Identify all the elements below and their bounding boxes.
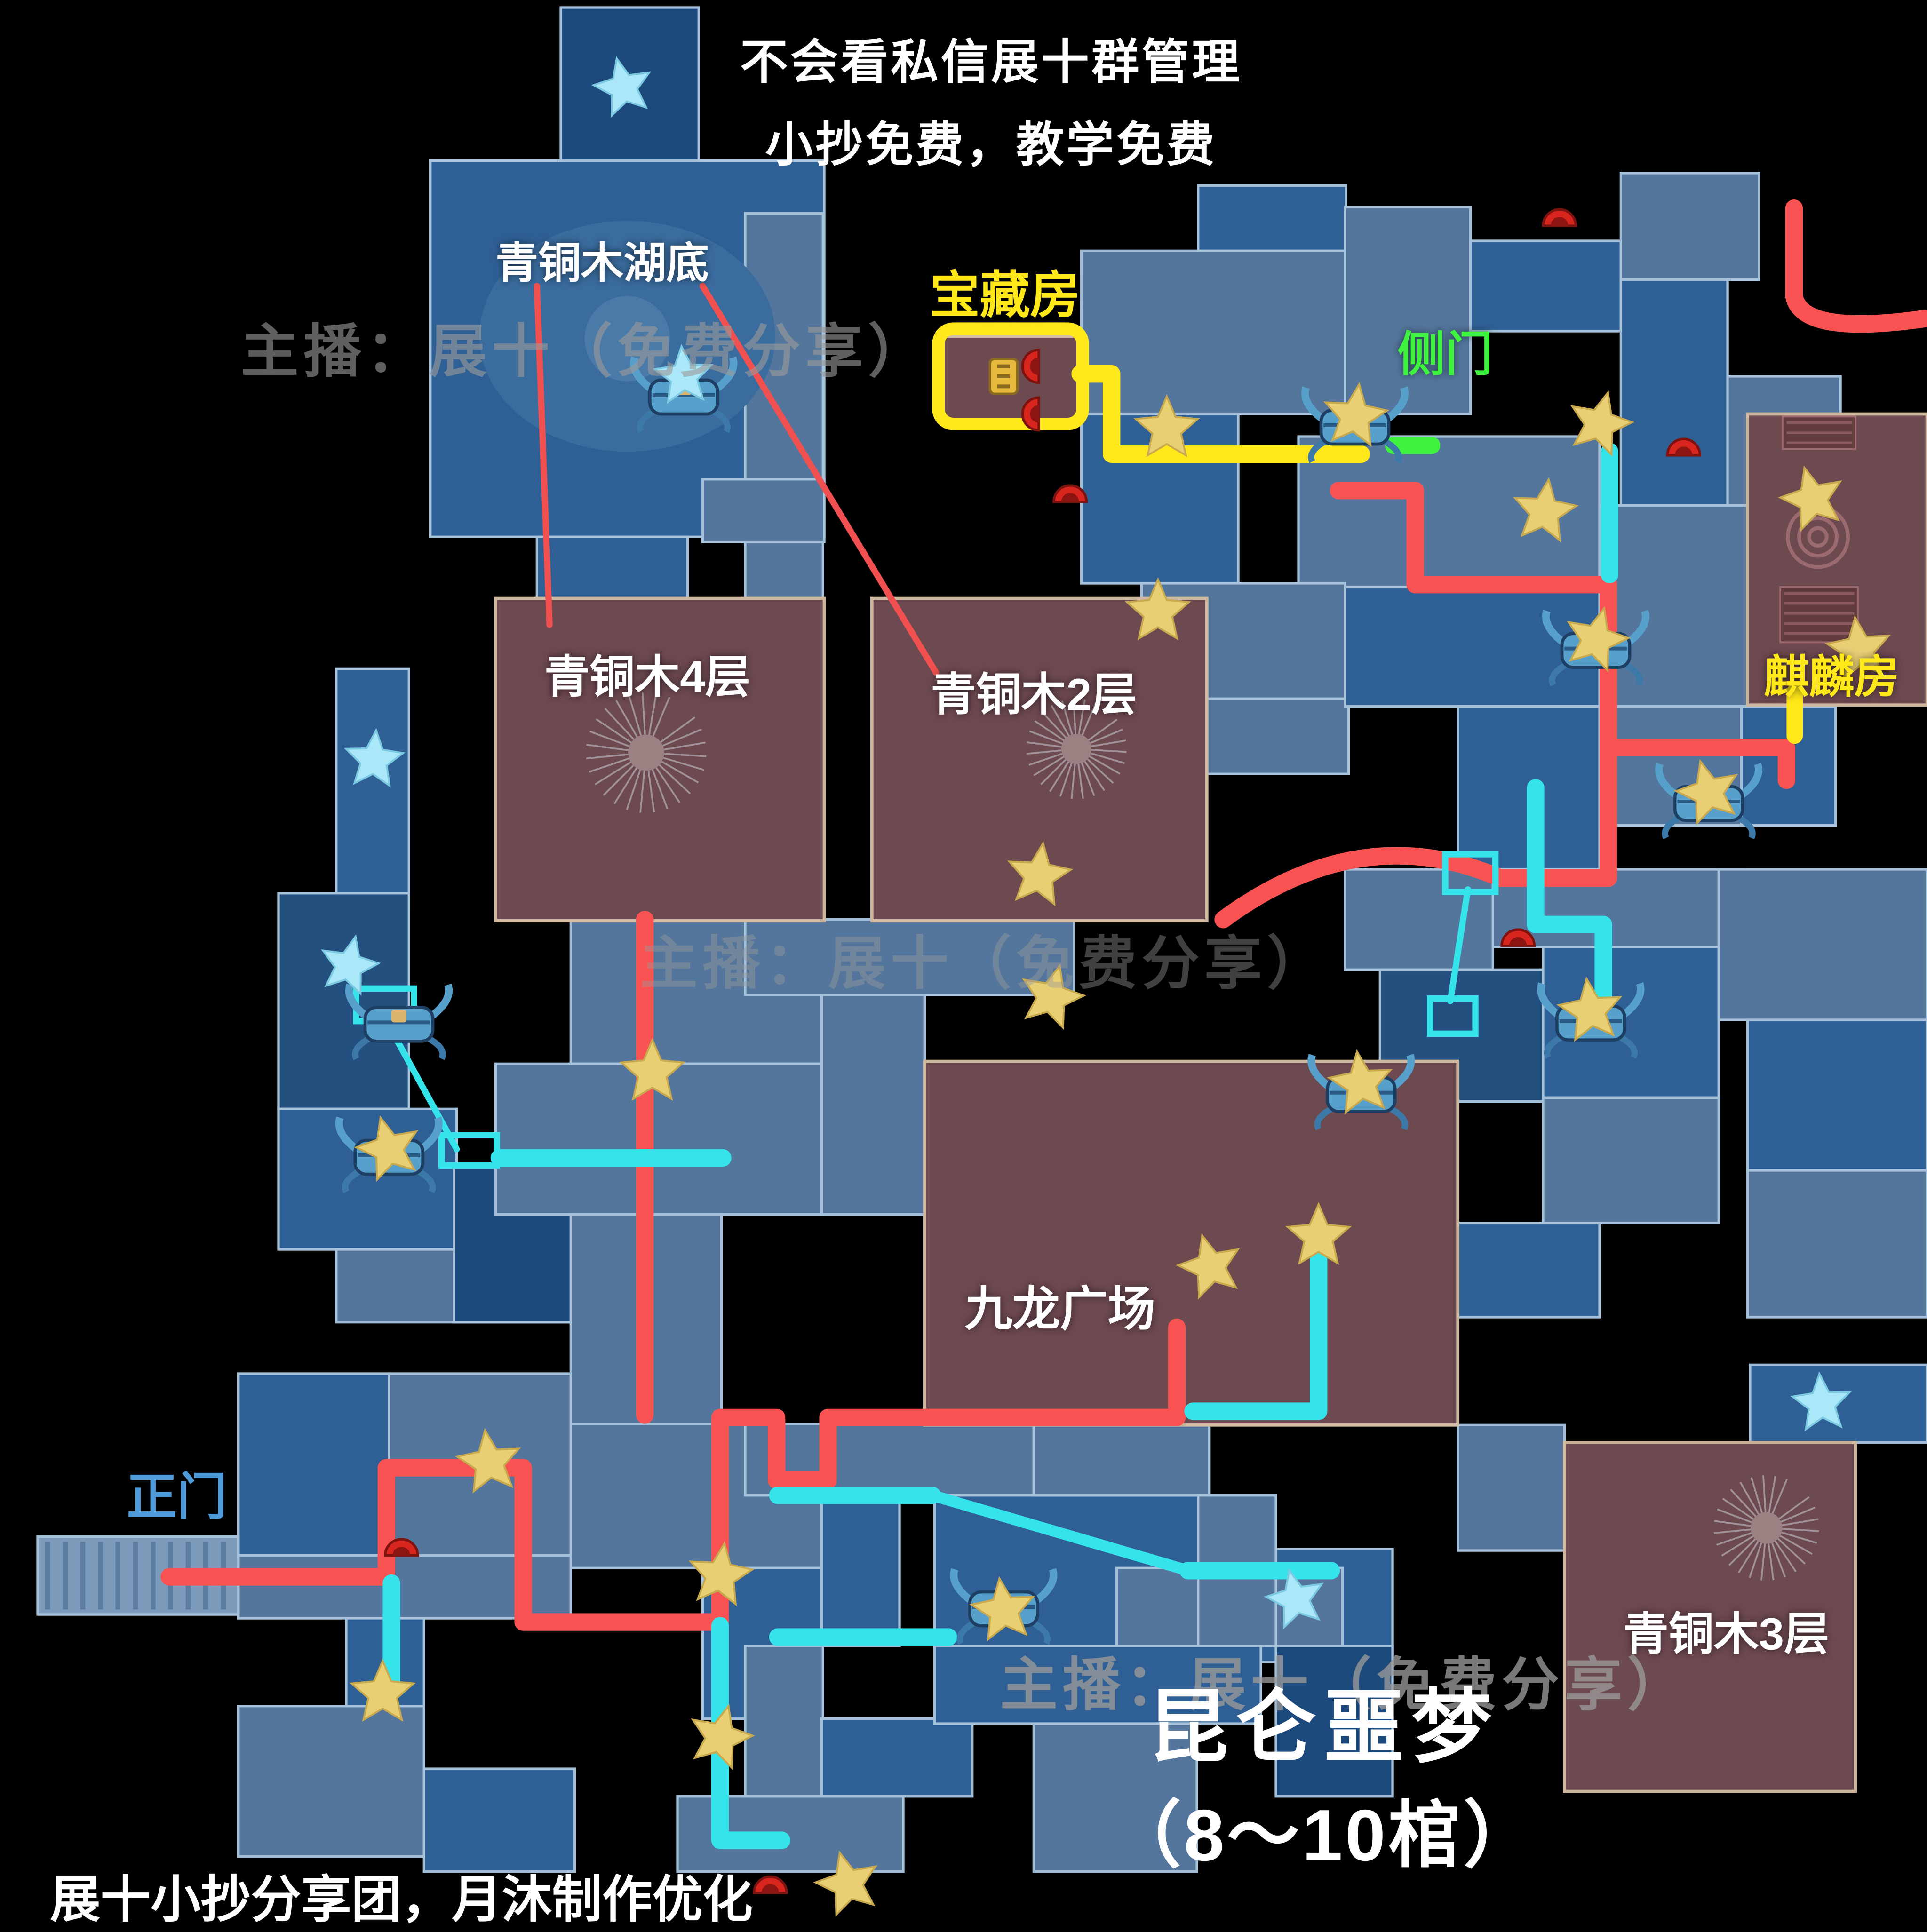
map-room xyxy=(336,668,409,907)
red-dome-marker xyxy=(1543,209,1576,226)
map-room xyxy=(702,479,824,542)
map-room xyxy=(1207,699,1348,774)
label-qilinfang: 麒麟房 xyxy=(1764,641,1899,707)
map-stage: 主播：展十（免费分享）主播：展十（免费分享）主播：展十（免费分享） 不会看私信展… xyxy=(0,0,1927,1927)
label-jiulong-guangchang: 九龙广场 xyxy=(965,1270,1155,1339)
map-room xyxy=(1543,1097,1719,1223)
gold-treasure-icon xyxy=(990,359,1018,394)
label-qingtongmu-2ceng: 青铜木2层 xyxy=(931,659,1137,724)
map-subtitle: （8～10棺） xyxy=(1108,1776,1538,1882)
map-room xyxy=(239,1706,424,1857)
map-room xyxy=(424,1769,574,1872)
map-room xyxy=(822,1718,972,1796)
map-room xyxy=(1719,869,1927,1020)
header-line-1: 不会看私信展十群管理 xyxy=(740,23,1242,92)
map-room xyxy=(1458,1425,1565,1550)
label-cemen: 侧门 xyxy=(1398,316,1493,385)
map-room xyxy=(239,1374,389,1556)
map-title: 昆仑噩梦 xyxy=(1148,1663,1499,1779)
map-room xyxy=(1345,869,1493,970)
map-room xyxy=(1621,280,1728,506)
map-room xyxy=(1748,1020,1927,1170)
map-room xyxy=(1621,173,1759,280)
red-route-arc xyxy=(1794,296,1924,324)
label-qingtongmu-4ceng: 青铜木4层 xyxy=(544,641,750,707)
label-zhengmen: 正门 xyxy=(127,1456,227,1529)
map-room xyxy=(822,1495,900,1646)
map-room xyxy=(1034,1424,1209,1495)
label-qingtongmu-3ceng: 青铜木3层 xyxy=(1624,1598,1829,1663)
red-dome-marker xyxy=(754,1876,787,1893)
streamer-watermark: 主播：展十（免费分享） xyxy=(640,918,1330,1001)
header-line-2: 小抄免费，教学免费 xyxy=(765,106,1217,175)
map-room xyxy=(822,995,925,1215)
label-qingtongmu-hudi: 青铜木湖底 xyxy=(495,229,709,291)
special-room xyxy=(924,1061,1457,1425)
map-room xyxy=(1458,1223,1600,1317)
map-room xyxy=(1748,1170,1927,1317)
label-baozangfang: 宝藏房 xyxy=(930,254,1080,327)
map-room xyxy=(1198,186,1346,251)
map-room xyxy=(1600,506,1748,707)
map-room xyxy=(745,1646,823,1797)
credit-text: 展十小抄分享团，月沐制作优化 xyxy=(50,1859,753,1932)
streamer-watermark: 主播：展十（免费分享） xyxy=(241,306,931,389)
map-room xyxy=(279,893,409,1109)
